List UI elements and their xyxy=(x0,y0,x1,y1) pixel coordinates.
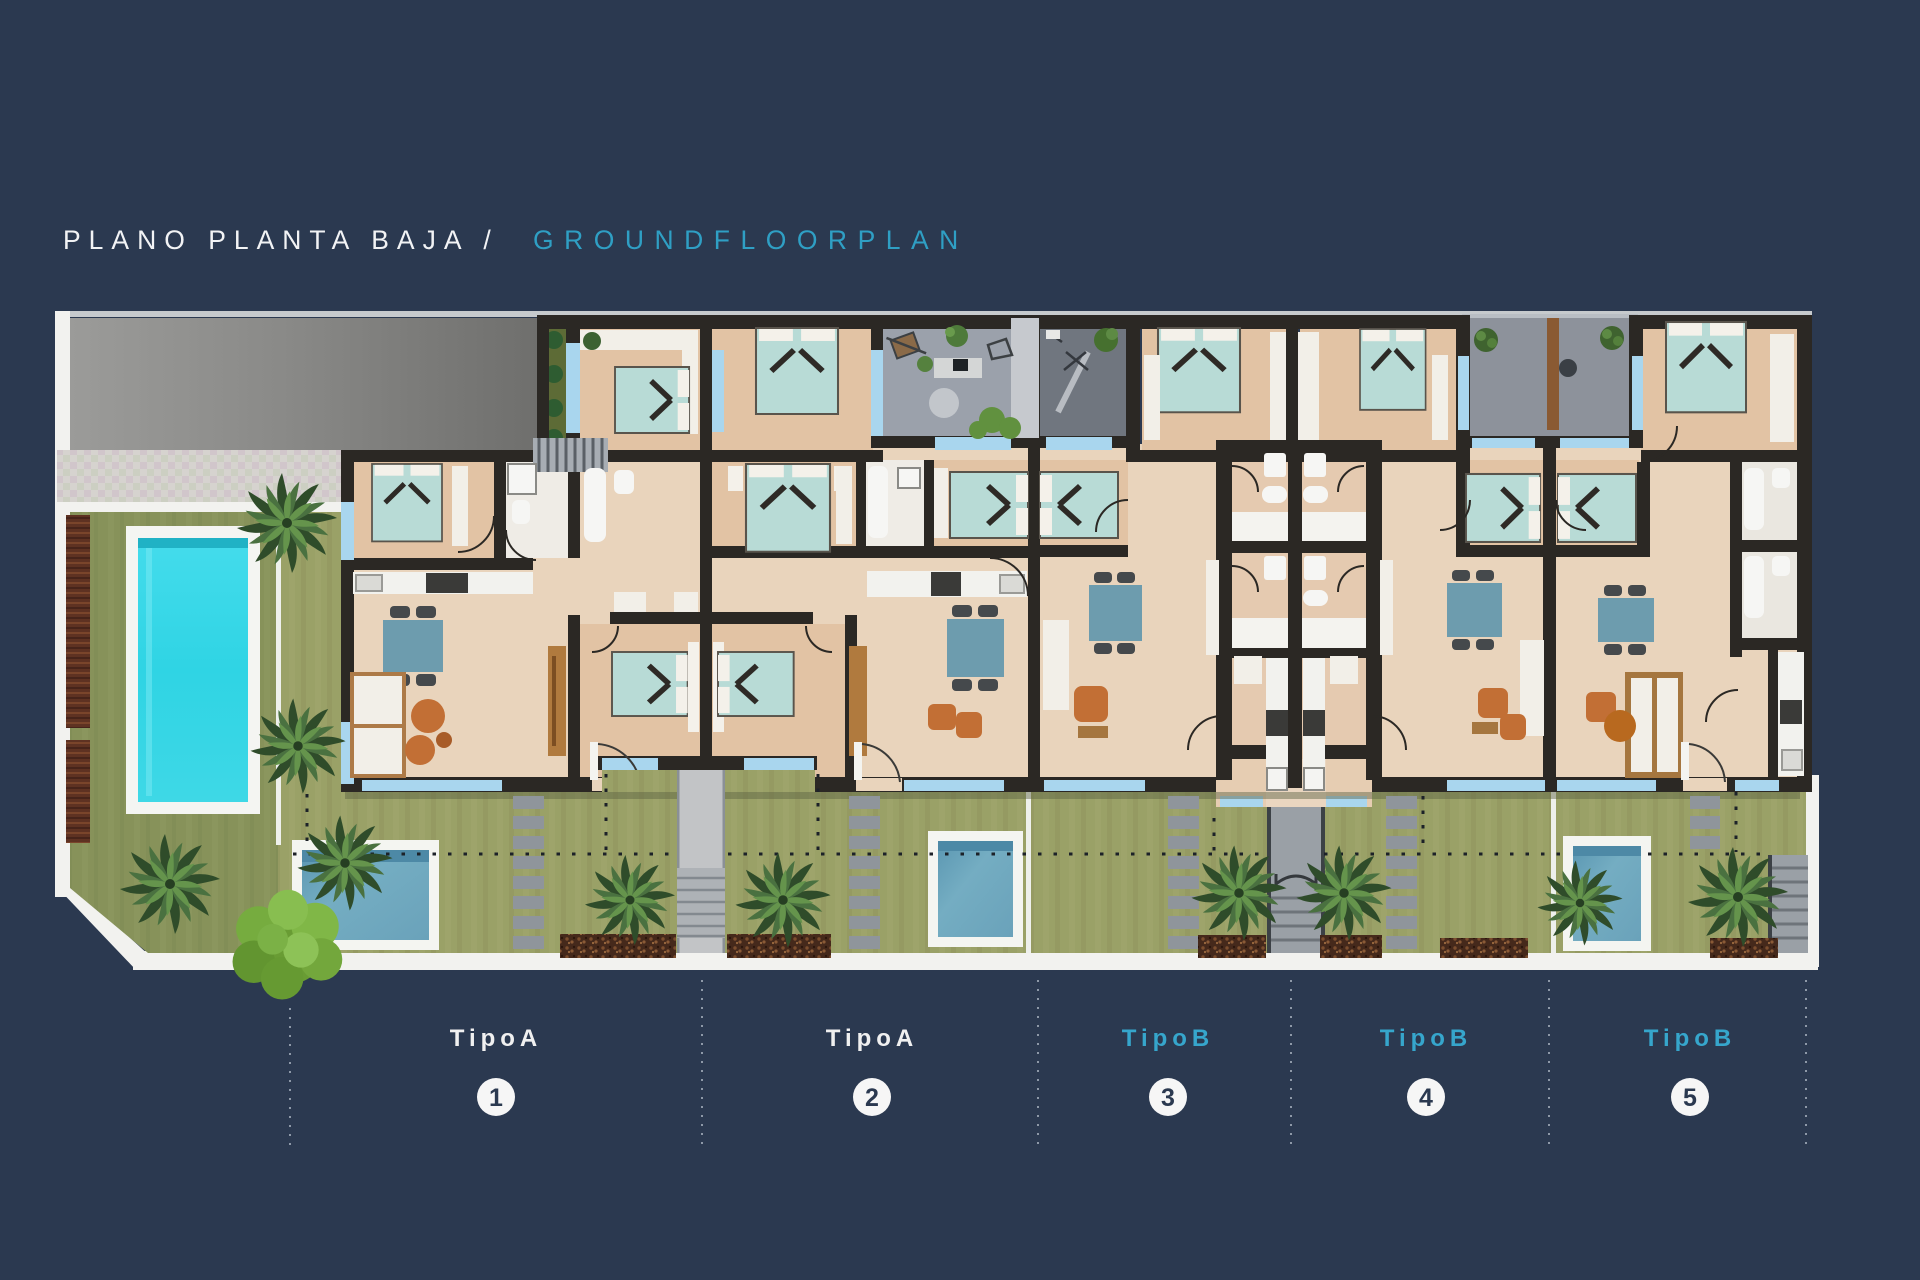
svg-text:PLANO PLANTA BAJA /: PLANO PLANTA BAJA / xyxy=(63,225,499,255)
svg-text:TipoB: TipoB xyxy=(1644,1025,1737,1052)
svg-text:3: 3 xyxy=(1161,1084,1175,1112)
svg-text:TipoB: TipoB xyxy=(1122,1025,1215,1052)
svg-text:1: 1 xyxy=(489,1084,503,1112)
svg-text:GROUNDFLOORPLAN: GROUNDFLOORPLAN xyxy=(533,225,969,255)
svg-text:2: 2 xyxy=(865,1084,879,1112)
svg-text:5: 5 xyxy=(1683,1084,1697,1112)
svg-text:4: 4 xyxy=(1419,1084,1433,1112)
svg-text:TipoA: TipoA xyxy=(450,1025,543,1052)
svg-text:TipoA: TipoA xyxy=(826,1025,919,1052)
svg-text:TipoB: TipoB xyxy=(1380,1025,1473,1052)
